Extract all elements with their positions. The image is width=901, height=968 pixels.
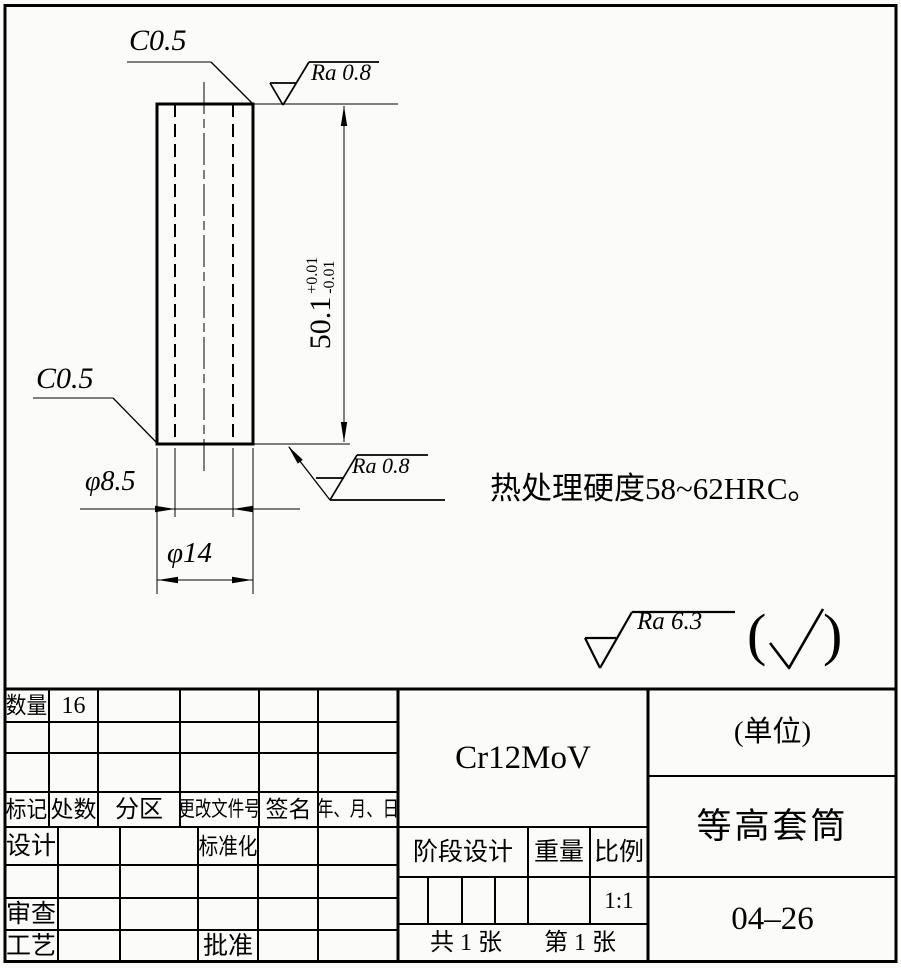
bore-diameter-dimension: φ8.5 [85, 468, 136, 496]
rev-header-zone: 分区 [98, 792, 180, 827]
qty-value: 16 [49, 689, 98, 722]
process-label: 工艺 [4, 930, 58, 962]
stage-label: 阶段设计 [398, 827, 528, 877]
design-label: 设计 [4, 827, 58, 865]
height-tolerance-stack: +0.01 -0.01 [304, 257, 339, 294]
default-roughness-paren-close: ) [823, 606, 842, 664]
leader-lines [113, 62, 330, 500]
chamfer-label-top: C0.5 [129, 26, 187, 56]
scale-label: 比例 [590, 827, 648, 877]
general-roughness-label: Ra 6.3 [637, 609, 702, 634]
standardization-label: 标准化 [203, 827, 254, 865]
chamfer-label-bottom: C0.5 [36, 364, 94, 394]
dimension-lines [33, 62, 398, 594]
default-roughness-paren-open: ( [747, 606, 766, 664]
checkmark-icon [770, 609, 823, 668]
unit-name: (单位) [648, 689, 897, 776]
part-outline [157, 104, 253, 444]
surface-roughness-label-bottom: Ra 0.8 [352, 455, 409, 477]
outer-diameter-dimension: φ14 [167, 539, 212, 568]
part-name: 等高套筒 [648, 776, 897, 877]
drawing-sheet: C0.5 Ra 0.8 50.1 +0.01 -0.01 C0.5 φ8.5 φ… [0, 0, 901, 968]
scale-value: 1:1 [590, 877, 648, 924]
approve-label: 批准 [198, 930, 258, 962]
surface-roughness-label-top: Ra 0.8 [311, 61, 371, 84]
qty-label: 数量 [6, 689, 47, 722]
material-spec: Cr12MoV [398, 689, 648, 827]
total-sheets: 共 1 张 [430, 931, 502, 955]
rev-header-change-doc: 更改文件号 [189, 792, 251, 827]
rev-header-mark: 标记 [6, 792, 47, 827]
check-label: 审查 [4, 898, 58, 930]
rev-header-date: 年、月、日 [327, 792, 389, 827]
rev-header-count: 处数 [49, 792, 98, 827]
sheet-count-row: 共 1 张 第 1 张 [398, 924, 648, 962]
height-dimension: 50.1 +0.01 -0.01 [299, 208, 343, 398]
heat-treatment-note: 热处理硬度58~62HRC。 [490, 473, 819, 504]
tolerance-upper: +0.01 [304, 257, 321, 294]
sheet-number: 第 1 张 [544, 931, 616, 955]
drawing-number: 04–26 [648, 877, 897, 962]
weight-label: 重量 [528, 827, 590, 877]
height-dimension-value: 50.1 [304, 297, 338, 350]
tolerance-lower: -0.01 [321, 257, 338, 294]
rev-header-signature: 签名 [259, 792, 318, 827]
